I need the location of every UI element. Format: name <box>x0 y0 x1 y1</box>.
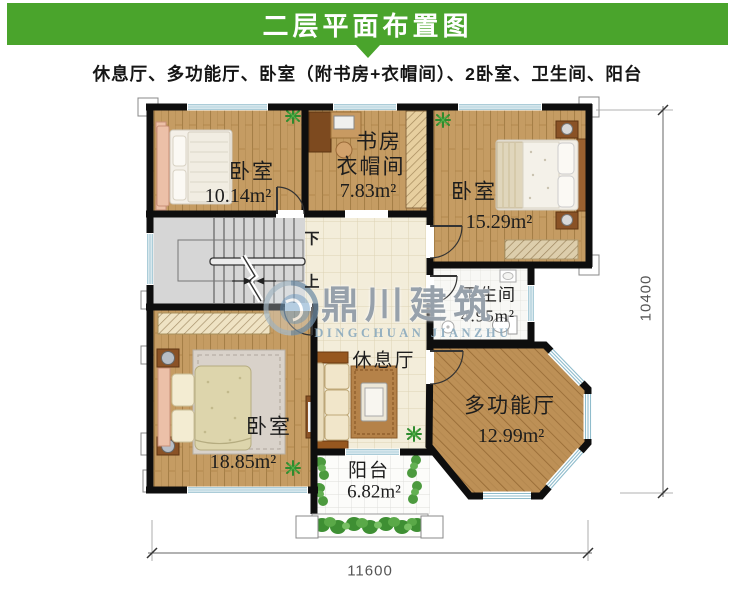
plant-icon <box>286 461 300 475</box>
window-bay-bottom <box>483 494 531 499</box>
stair-handrail <box>210 258 305 265</box>
stairs-up-label: 上 <box>304 276 319 291</box>
window-top-study <box>333 104 397 111</box>
page: 二层平面布置图 休息厅、多功能厅、卧室（附书房+衣帽间）、2卧室、卫生间、阳台 <box>0 0 735 600</box>
bedroom-top-left-name: 卧室 <box>229 162 275 183</box>
window-bathroom-right <box>528 285 535 322</box>
bedroom-bottom-left-area: 18.85m² <box>210 452 277 472</box>
study-wardrobe <box>406 111 427 208</box>
window-bay-right <box>586 394 591 439</box>
plant-icon <box>436 113 450 127</box>
bedroom-top-right-name: 卧室 <box>451 182 497 203</box>
watermark-text-en: DINGCHUAN JIANZHU <box>314 327 511 340</box>
study-name-line1: 书房 <box>356 132 402 153</box>
bedroom-top-left-area: 10.14m² <box>205 186 272 206</box>
balcony-name: 阳台 <box>348 462 390 481</box>
balcony-pillar-left <box>296 516 318 538</box>
balcony-planter <box>296 514 443 538</box>
watermark-text-zh: 鼎川建筑 <box>321 287 497 325</box>
window-balcony-slider <box>345 449 400 456</box>
plant-icon <box>407 427 421 441</box>
window-bottom-bedroom3 <box>187 487 308 494</box>
study-name-line2: 衣帽间 <box>337 157 406 178</box>
balcony-area: 6.82m² <box>347 483 401 502</box>
stairs-down-label: 下 <box>304 233 319 248</box>
window-top-bedroom2 <box>458 104 542 111</box>
dimension-bottom-label: 11600 <box>347 564 393 579</box>
rest-hall-name: 休息厅 <box>352 352 415 371</box>
closet-bottom-left <box>158 313 270 334</box>
window-top-bedroom1 <box>187 104 268 111</box>
hall-coffee-table <box>351 366 397 438</box>
bedroom-top-right-area: 15.29m² <box>466 212 533 232</box>
balcony-pillar-right <box>421 516 443 538</box>
watermark-logo-icon <box>266 283 316 333</box>
bedroom-bottom-left-name: 卧室 <box>246 417 292 438</box>
dimension-right-label: 10400 <box>639 275 654 322</box>
rug-top-right <box>505 240 578 259</box>
window-left-stairs <box>147 233 154 285</box>
multifunction-hall-name: 多功能厅 <box>464 396 556 417</box>
multifunction-hall-area: 12.99m² <box>478 426 545 446</box>
hall-sofa <box>312 352 349 452</box>
study-area: 7.83m² <box>340 181 397 201</box>
plant-icon <box>286 109 300 123</box>
